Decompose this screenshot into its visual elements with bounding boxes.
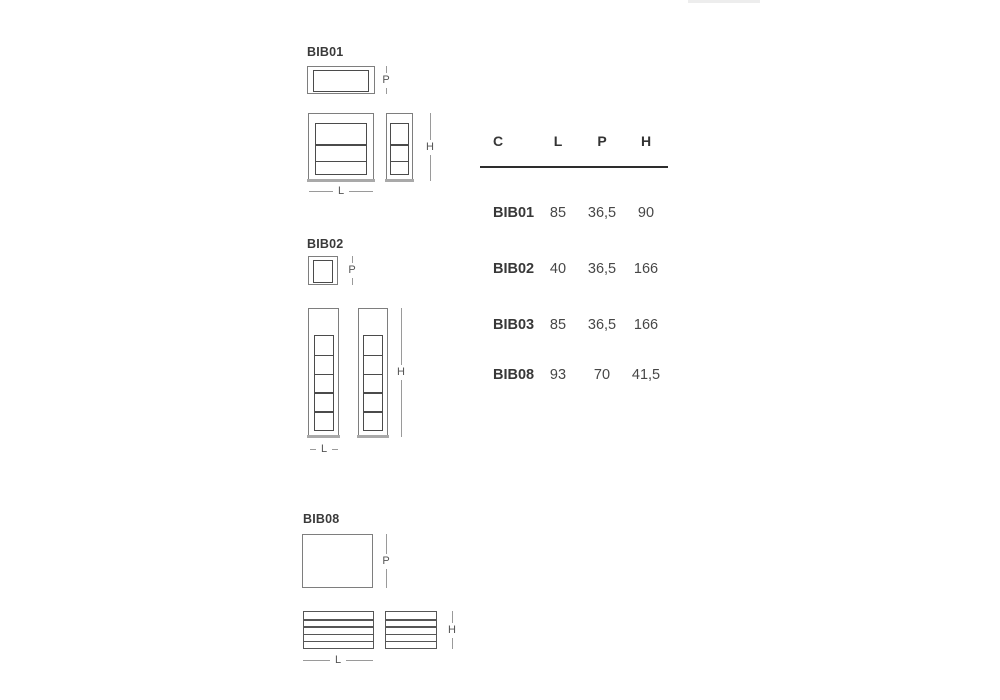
column-header-p: P <box>580 133 624 149</box>
row-h-value: 90 <box>624 205 668 221</box>
bib02-front-view <box>308 308 339 437</box>
table-row: BIB02 40 36,5 166 <box>480 261 674 277</box>
dimension-label-h: H <box>397 365 405 380</box>
bib08-plan-view <box>302 534 373 588</box>
table-row: BIB03 85 36,5 166 <box>480 317 674 333</box>
bib01-front-base <box>307 179 375 182</box>
dimension-line <box>401 380 402 437</box>
slat-line <box>386 634 436 636</box>
shelf-line <box>364 392 382 394</box>
bib08-depth-dimension: P <box>380 534 392 588</box>
shelf-line <box>364 374 382 376</box>
page-edge-artifact <box>688 0 760 3</box>
bib01-front-inner <box>315 123 367 175</box>
dimension-line <box>352 256 353 263</box>
bib08-front-view <box>303 611 374 649</box>
dimension-line <box>386 569 387 589</box>
catalog-spec-page: BIB01 P H L BIB02 <box>0 0 1000 700</box>
dimension-label-h: H <box>448 623 456 638</box>
dimension-line <box>430 155 431 182</box>
bib01-side-inner <box>390 123 409 175</box>
dimension-label-h: H <box>426 140 434 155</box>
bib02-side-inner <box>363 335 383 431</box>
shelf-line <box>391 144 408 146</box>
row-l-value: 85 <box>536 317 580 333</box>
bib02-height-dimension: H <box>394 308 408 437</box>
row-h-value: 166 <box>624 261 668 277</box>
slat-line <box>304 619 373 621</box>
table-row: BIB01 85 36,5 90 <box>480 205 674 221</box>
dimension-label-l: L <box>333 186 349 197</box>
bib02-label: BIB02 <box>307 237 343 251</box>
dimension-label-p: P <box>382 73 389 88</box>
bib08-side-view <box>385 611 437 649</box>
table-row: BIB08 93 70 41,5 <box>480 367 674 383</box>
row-h-value: 166 <box>624 317 668 333</box>
bib01-side-base <box>385 179 414 182</box>
row-l-value: 93 <box>536 367 580 383</box>
dimension-line <box>346 660 373 661</box>
table-header-rule <box>480 166 668 168</box>
shelf-line <box>315 374 333 376</box>
table-header-row: C L P H <box>480 133 674 149</box>
dimension-line <box>309 191 333 192</box>
dimension-line <box>352 278 353 285</box>
row-model-code: BIB01 <box>480 205 536 221</box>
slat-line <box>386 626 436 628</box>
bib08-label: BIB08 <box>303 512 339 526</box>
dimension-label-l: L <box>316 444 332 455</box>
bib02-plan-inner <box>313 260 333 283</box>
row-h-value: 41,5 <box>624 367 668 383</box>
row-l-value: 85 <box>536 205 580 221</box>
column-header-c: C <box>480 133 536 149</box>
column-header-h: H <box>624 133 668 149</box>
bib01-front-view <box>308 113 374 181</box>
shelf-line <box>315 411 333 413</box>
bib08-width-dimension: L <box>303 654 373 666</box>
slat-line <box>304 626 373 628</box>
bib01-side-view <box>386 113 413 181</box>
slat-line <box>386 619 436 621</box>
row-model-code: BIB08 <box>480 367 536 383</box>
dimension-line <box>386 88 387 95</box>
dimension-line <box>386 534 387 554</box>
shelf-line <box>315 392 333 394</box>
slat-line <box>386 641 436 643</box>
bib02-side-base <box>357 435 389 438</box>
bib02-front-inner <box>314 335 334 431</box>
bib01-plan-inner <box>313 70 369 92</box>
shelf-line <box>316 161 366 163</box>
bib02-depth-dimension: P <box>346 256 358 285</box>
bib02-side-view <box>358 308 388 437</box>
shelf-line <box>391 161 408 163</box>
dimension-line <box>452 638 453 650</box>
dimension-label-p: P <box>382 554 389 569</box>
row-l-value: 40 <box>536 261 580 277</box>
shelf-line <box>315 355 333 357</box>
bib01-height-dimension: H <box>423 113 437 181</box>
slat-line <box>304 634 373 636</box>
row-p-value: 36,5 <box>580 317 624 333</box>
column-header-l: L <box>536 133 580 149</box>
bib01-width-dimension: L <box>309 185 373 197</box>
bib02-plan-view <box>308 256 338 285</box>
row-model-code: BIB03 <box>480 317 536 333</box>
dimensions-table: C L P H BIB01 85 36,5 90 BIB02 40 36,5 1… <box>480 130 674 400</box>
shelf-line <box>364 355 382 357</box>
bib02-front-base <box>307 435 340 438</box>
dimension-line <box>332 449 338 450</box>
bib01-plan-view <box>307 66 375 94</box>
dimension-line <box>452 611 453 623</box>
row-p-value: 36,5 <box>580 205 624 221</box>
dimension-line <box>430 113 431 140</box>
row-p-value: 36,5 <box>580 261 624 277</box>
bib01-label: BIB01 <box>307 45 343 59</box>
bib02-width-dimension: L <box>310 443 338 455</box>
shelf-line <box>364 411 382 413</box>
dimension-line <box>349 191 373 192</box>
row-model-code: BIB02 <box>480 261 536 277</box>
dimension-label-l: L <box>330 655 346 666</box>
dimension-label-p: P <box>348 263 355 278</box>
dimension-line <box>401 308 402 365</box>
bib08-height-dimension: H <box>445 611 459 649</box>
slat-line <box>304 641 373 643</box>
row-p-value: 70 <box>580 367 624 383</box>
dimension-line <box>303 660 330 661</box>
shelf-line <box>316 144 366 146</box>
bib01-depth-dimension: P <box>380 66 392 94</box>
